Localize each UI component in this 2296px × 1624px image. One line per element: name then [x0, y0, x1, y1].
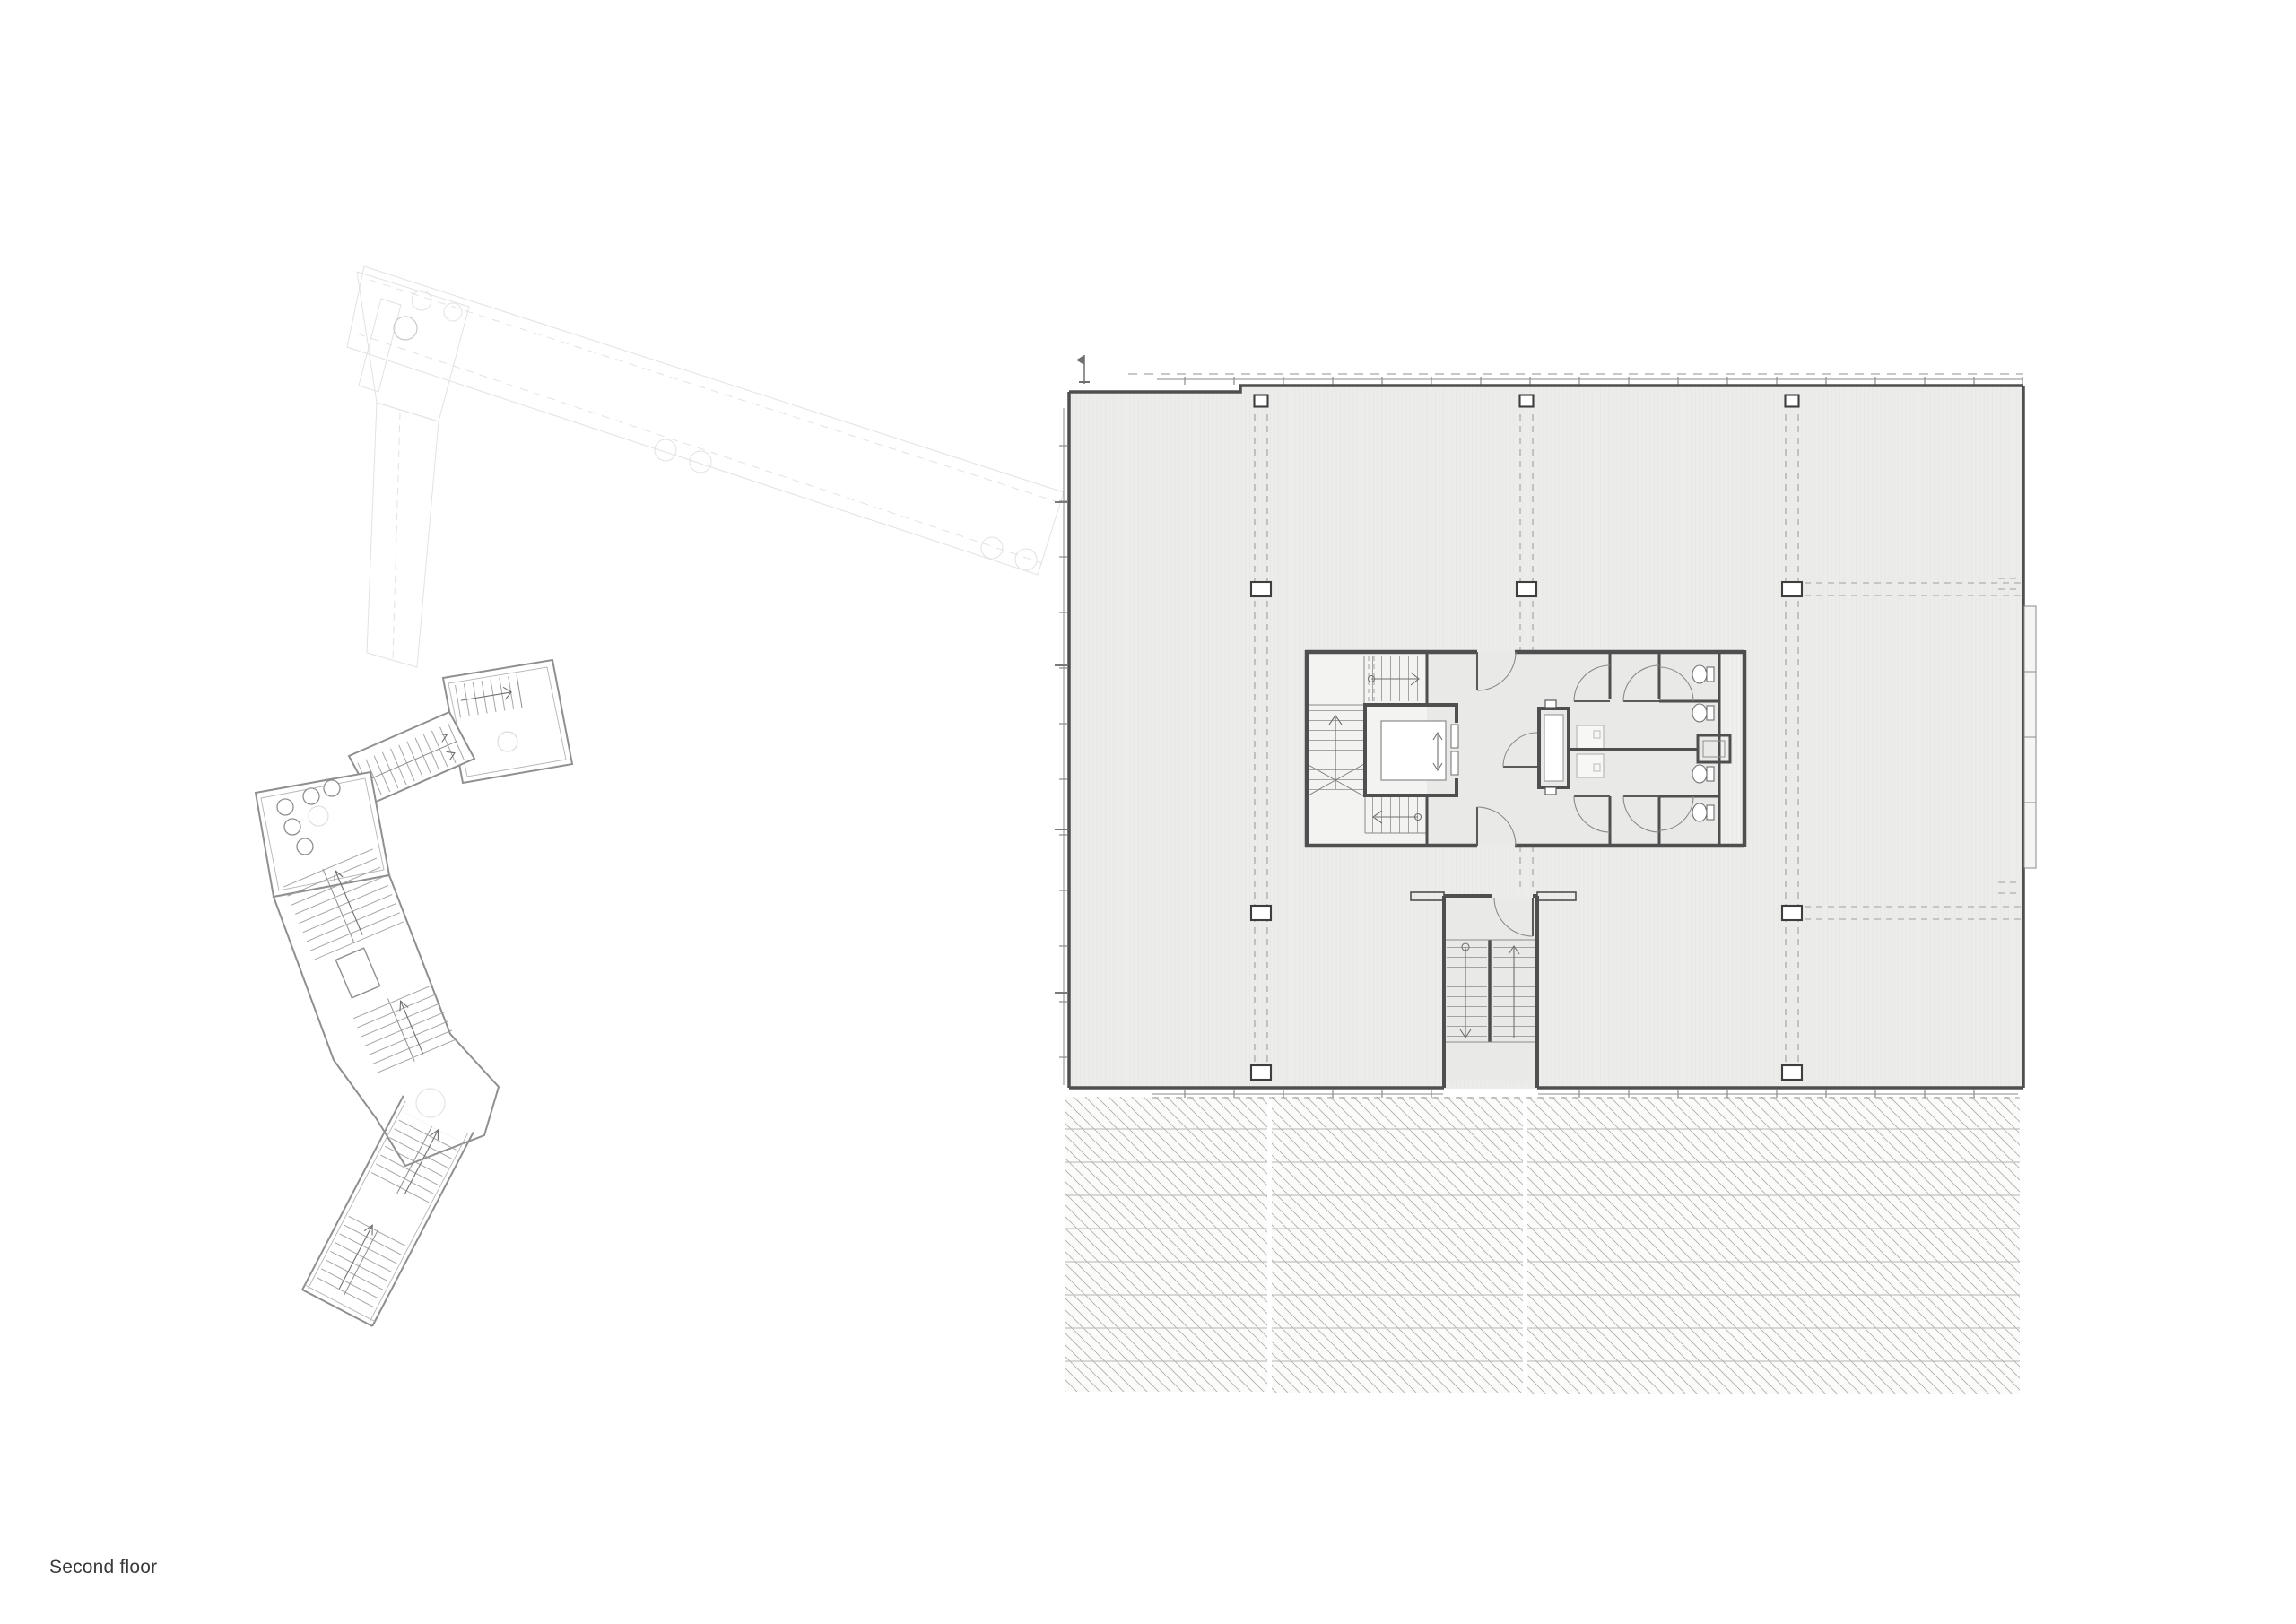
ghost-adjacent-building [347, 266, 1064, 667]
elevator-door-panel [1451, 751, 1458, 775]
ground-hatch [1065, 1097, 2020, 1394]
page: Second floor [0, 0, 2296, 1624]
elevator-door-panel [1451, 725, 1458, 748]
ghost-roof-opening [394, 317, 417, 340]
ghost-roof-wing [347, 266, 1064, 575]
floor-plan-canvas [0, 0, 2296, 1624]
main-building [1055, 355, 2036, 1098]
hatch-panel-center [1272, 1097, 1523, 1393]
floor-label: Second floor [49, 1557, 157, 1578]
ghost-side-wing [367, 403, 439, 667]
section-marker-flag [1076, 355, 1090, 384]
west-annex-building [256, 660, 572, 1326]
elevator-cab [1381, 721, 1446, 780]
east-louver-panel [2024, 606, 2036, 868]
hatch-panel-west [1065, 1097, 1267, 1392]
core-block [1305, 650, 1744, 847]
hatch-panel-east [1527, 1097, 2020, 1394]
